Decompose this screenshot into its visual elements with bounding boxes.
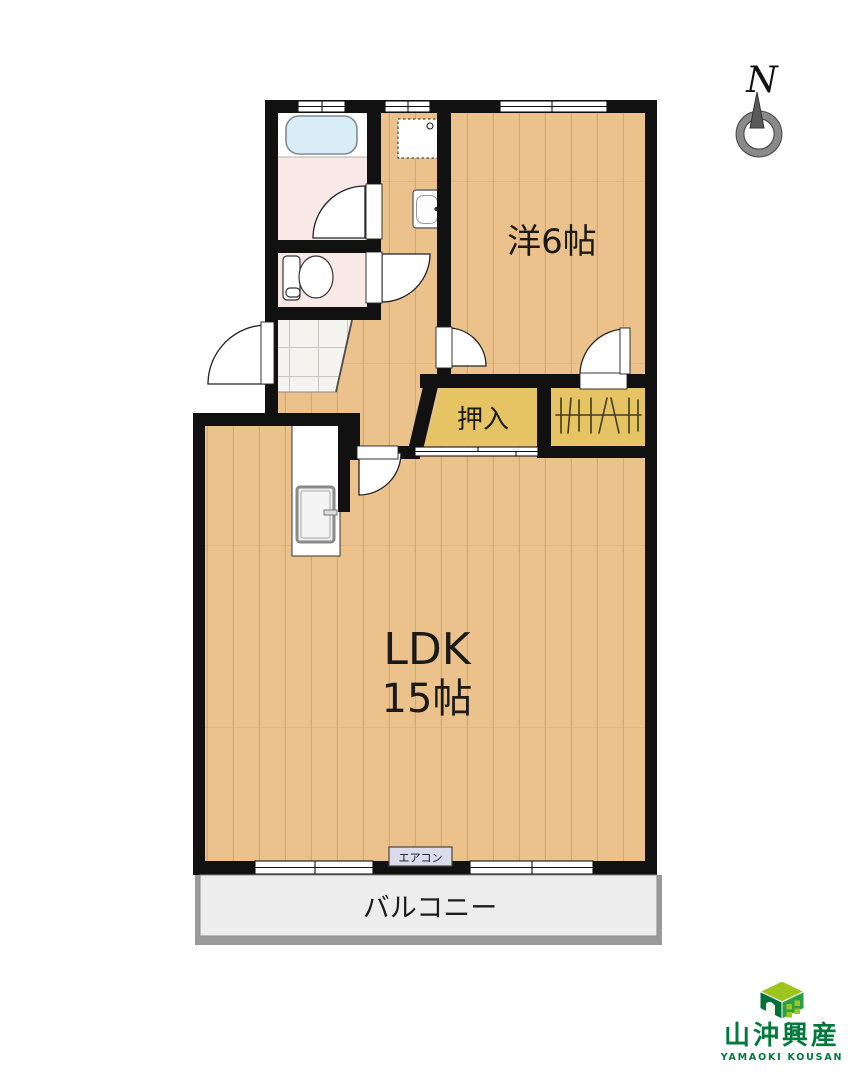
bathtub-icon xyxy=(286,116,357,154)
ldk-label-line1: LDK xyxy=(383,624,471,675)
logo-company-name-ja: 山沖興産 xyxy=(724,1020,840,1051)
ldk-label-line2: 15帖 xyxy=(382,676,473,722)
aircon: エアコン xyxy=(389,847,452,866)
bathroom-door-leaf xyxy=(366,184,382,239)
toilet-icon xyxy=(283,256,333,300)
wall-under-closet xyxy=(537,446,657,458)
logo-door xyxy=(766,1002,775,1018)
wash-basin-icon xyxy=(413,190,441,228)
toilet-door-leaf xyxy=(366,252,382,303)
wall-alcove-right xyxy=(338,413,350,512)
window-hallway xyxy=(385,101,430,112)
wall-closet-divider xyxy=(537,374,551,458)
oshiire-sliding-door xyxy=(415,447,538,456)
washing-machine-pan-icon xyxy=(398,119,439,158)
western-room-label: 洋6帖 xyxy=(507,222,597,262)
ldk-door-leaf xyxy=(357,446,398,459)
aircon-label: エアコン xyxy=(399,852,443,865)
wall-bath-toilet-divider xyxy=(265,240,381,253)
balcony: バルコニー xyxy=(195,875,662,945)
western-room-door-leaf xyxy=(436,327,452,368)
logo-company-name-en: YAMAOKI KOUSAN xyxy=(720,1052,843,1063)
wall-right xyxy=(645,100,657,875)
compass-north-label: N xyxy=(745,60,779,101)
oshiire-label: 押入 xyxy=(457,405,509,435)
wall-toilet-bottom xyxy=(265,307,381,320)
window-ldk-left xyxy=(255,861,373,874)
entrance-door-leaf xyxy=(261,322,274,384)
logo-cube-icon xyxy=(760,981,804,1019)
window-western-room xyxy=(500,101,607,112)
hanger-closet xyxy=(551,388,645,446)
balcony-label: バルコニー xyxy=(363,893,497,924)
refrigerator-icon xyxy=(297,487,337,542)
floor-plan-page: バルコニー エアコン 洋6帖 押入 LDK 15帖 N xyxy=(0,0,864,1072)
compass: N xyxy=(736,60,782,157)
wall-ldk-top xyxy=(193,413,360,426)
wall-left-lower xyxy=(193,413,205,875)
window-bathroom xyxy=(298,101,345,112)
hanger-closet-doorway xyxy=(580,373,627,389)
window-ldk-right xyxy=(470,861,593,874)
hanger-closet-door-leaf xyxy=(620,328,630,374)
floor-plan-canvas: バルコニー エアコン 洋6帖 押入 LDK 15帖 N xyxy=(0,0,864,1072)
company-logo: 山沖興産 YAMAOKI KOUSAN xyxy=(720,981,843,1063)
